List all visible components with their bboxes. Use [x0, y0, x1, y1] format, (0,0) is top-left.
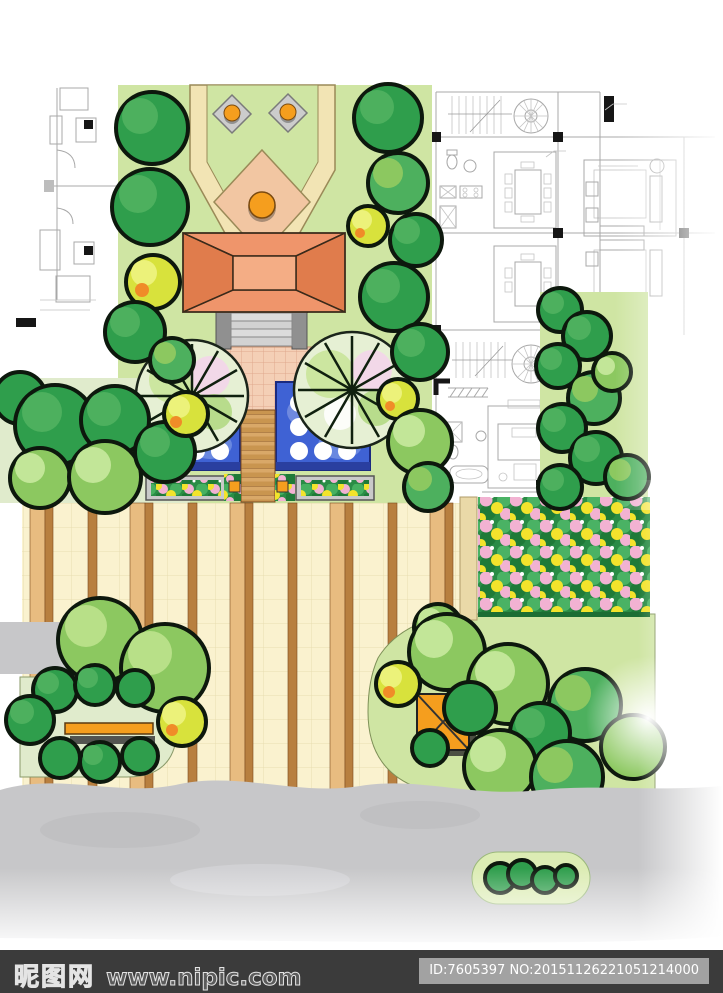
wood-bridge [241, 410, 275, 502]
nipic-logo-cn: 昵图网 [14, 962, 95, 991]
nipic-logo-url: www.nipic.com [106, 965, 301, 991]
mini-table-right [277, 481, 288, 492]
bed-edge-strip [460, 497, 477, 620]
watermark-bar: 昵图网 www.nipic.com ID:7605397 NO:20151126… [0, 950, 723, 993]
mini-table-left [229, 481, 240, 492]
scan-fade-bottom [0, 868, 723, 950]
scan-fade-right-top [615, 80, 723, 510]
planter-right [296, 476, 374, 500]
flower-bed-edge [478, 612, 650, 617]
landscape-plan-image: 昵图网 www.nipic.com ID:7605397 NO:20151126… [0, 0, 723, 993]
pavilion-roof [183, 233, 345, 312]
fountain-feature [249, 192, 275, 218]
flower-bed [478, 497, 650, 617]
plan-artwork [0, 0, 723, 950]
image-id-badge: ID:7605397 NO:20151126221051214000 [419, 958, 709, 984]
nipic-logo: 昵图网 www.nipic.com [14, 957, 302, 993]
spiral-stair-ornament-top [514, 99, 548, 133]
